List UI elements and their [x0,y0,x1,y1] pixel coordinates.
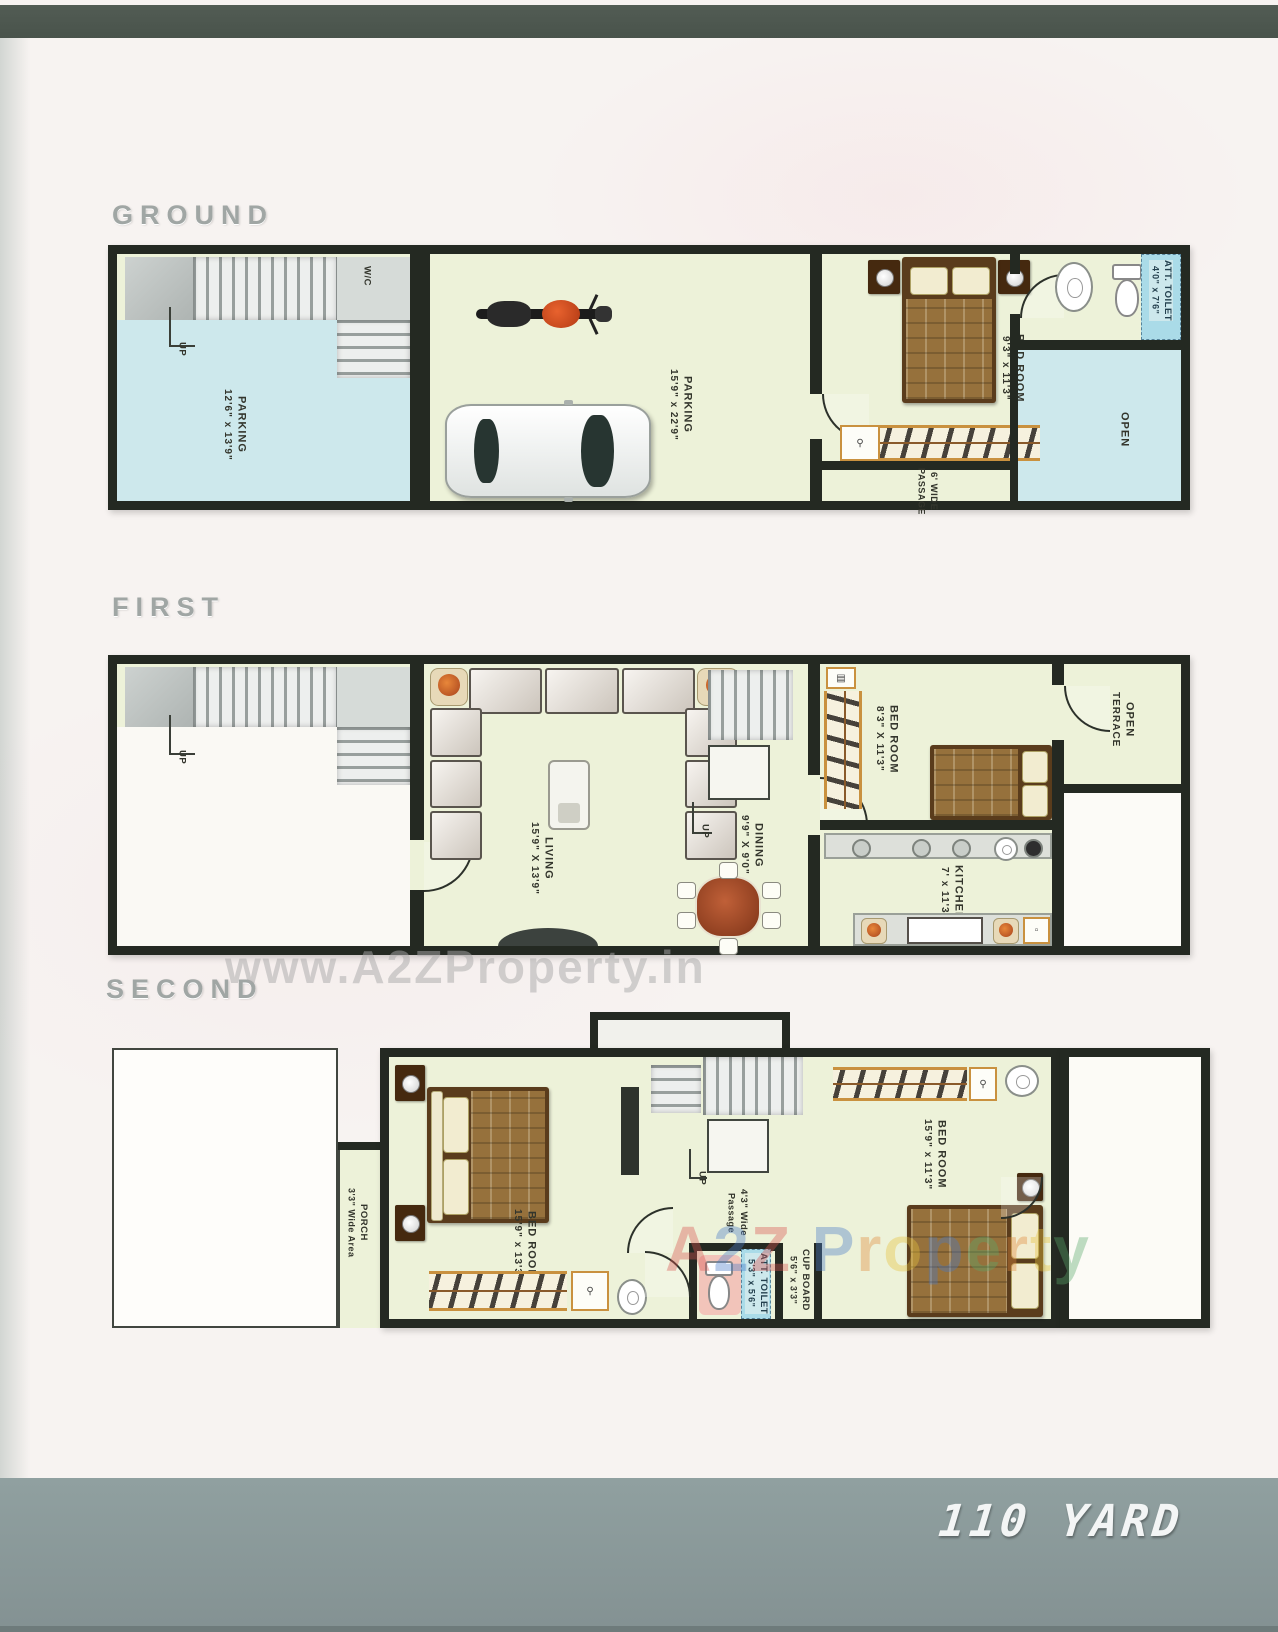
bed-icon [930,745,1052,820]
sofa-icon [469,668,695,714]
wall [410,664,424,840]
wall [810,439,822,501]
up-label: UP [698,824,710,838]
dresser-icon: ▤ [826,667,856,689]
stairs-icon [651,1065,701,1113]
dresser-icon: ⚲ [969,1067,997,1101]
room-label: ATT. TOILET4'0" x 7'6" [1149,260,1173,321]
room-label: 6' WIDEPASSAGE [915,468,939,515]
car-icon [445,404,651,498]
room-label: OPEN [1117,412,1131,447]
chair-icon [719,938,738,955]
wall [810,254,822,394]
floor-plan-ground: W/C UP PARKING12'6" x 13'9" PARKING15'9"… [108,245,1190,510]
room-open [1018,350,1181,501]
room-label: DINING9'9" X 9'0" [738,815,765,875]
footer-bar: 110 YARD [0,1478,1278,1632]
stairs-icon [708,670,793,740]
wash-basin-icon [617,1279,647,1315]
sink-icon [1055,262,1093,312]
wall [1010,350,1018,501]
wall [1052,740,1064,946]
plot-area-label: 110 YARD [936,1496,1185,1547]
wardrobe-icon [824,691,862,809]
nightstand-icon [395,1205,425,1241]
wall [1064,784,1181,793]
chair-icon [677,882,696,899]
floor-title-first: FIRST [112,592,225,623]
wall [808,835,820,946]
room-label: OPENTERRACE [1109,692,1136,747]
page-left-shade [0,38,30,1478]
stairs-icon [337,727,410,785]
room-wc [337,257,410,320]
up-direction-line [689,1149,691,1177]
nightstand-icon [868,260,900,294]
door-arc [1064,686,1110,732]
top-bar [0,5,1278,38]
stairs-icon [193,257,337,320]
watermark-center: www.A2ZProperty.in [225,940,706,994]
open-void [1064,793,1181,946]
motorcycle-icon [467,282,612,346]
stairs-icon [337,320,410,378]
room-label: BED ROOM15'9" x 13'3" [511,1209,538,1281]
up-label: UP [175,750,187,764]
wardrobe-icon [833,1067,967,1101]
dining-table-icon [697,878,759,936]
wall [1052,664,1064,685]
room-label: PORCH3'3" Wide Area [345,1188,369,1258]
up-direction-line [169,715,171,753]
watermark-bottom: A2Z Property [665,1212,1091,1286]
up-direction-line [169,307,171,345]
wall [410,254,430,501]
bed-icon [427,1087,549,1223]
bed-icon [902,257,996,403]
chair-icon [762,912,781,929]
second-core: BED ROOM15'9" x 13'3" ⚲ UP 4'3" WidePass… [380,1048,1060,1328]
chair-icon [762,882,781,899]
chair-icon [719,862,738,879]
room-label: PARKING12'6" x 13'9" [221,389,248,461]
dresser-icon: ⚲ [840,425,880,461]
up-label: UP [175,342,187,356]
wall [808,664,820,775]
room-label: BED ROOM15'9" x 11'3" [921,1119,948,1190]
coffee-table-icon [548,760,590,830]
stair-landing-block [125,667,193,727]
toilet-icon [1112,264,1142,318]
open-area-left [112,1048,338,1328]
wall [1010,340,1181,350]
stair-landing [337,667,410,727]
room-label: LIVING15'9" X 13'9" [528,822,555,895]
room-label: BED ROOM8'3" X 11'3" [873,705,900,774]
chair-icon [677,912,696,929]
wall [820,820,1052,830]
wardrobe-icon [429,1271,567,1311]
stove-icon [907,917,983,944]
plant-table-icon [430,668,468,706]
wall [410,890,424,946]
wall [1010,254,1020,274]
room-label: PARKING15'9" x 22'9" [667,369,694,441]
sofa-icon [430,708,482,860]
up-direction-line [692,802,694,832]
kitchen-counter-icon [824,833,1052,859]
stair-landing [707,1119,769,1173]
stair-landing-block [125,257,193,320]
nightstand-icon [395,1065,425,1101]
kitchen-sink-icon: ▫ [1023,917,1050,944]
stairs-icon [703,1057,803,1115]
wash-basin-icon [1005,1065,1039,1097]
cabinet-icon [621,1087,639,1175]
stair-landing [708,745,770,800]
up-label: UP [695,1171,707,1185]
stairs-icon [193,667,337,727]
room-label: W/C [360,266,372,286]
dresser-icon: ⚲ [571,1271,609,1311]
floor-plan-first: UP LIVING15'9" X 13'9" UP DINING9'9" X 9… [108,655,1190,955]
wall [338,1142,380,1150]
open-area-right [1060,1048,1210,1328]
stove-counter-icon: ▫ [853,913,1052,946]
floor-title-ground: GROUND [112,200,274,231]
